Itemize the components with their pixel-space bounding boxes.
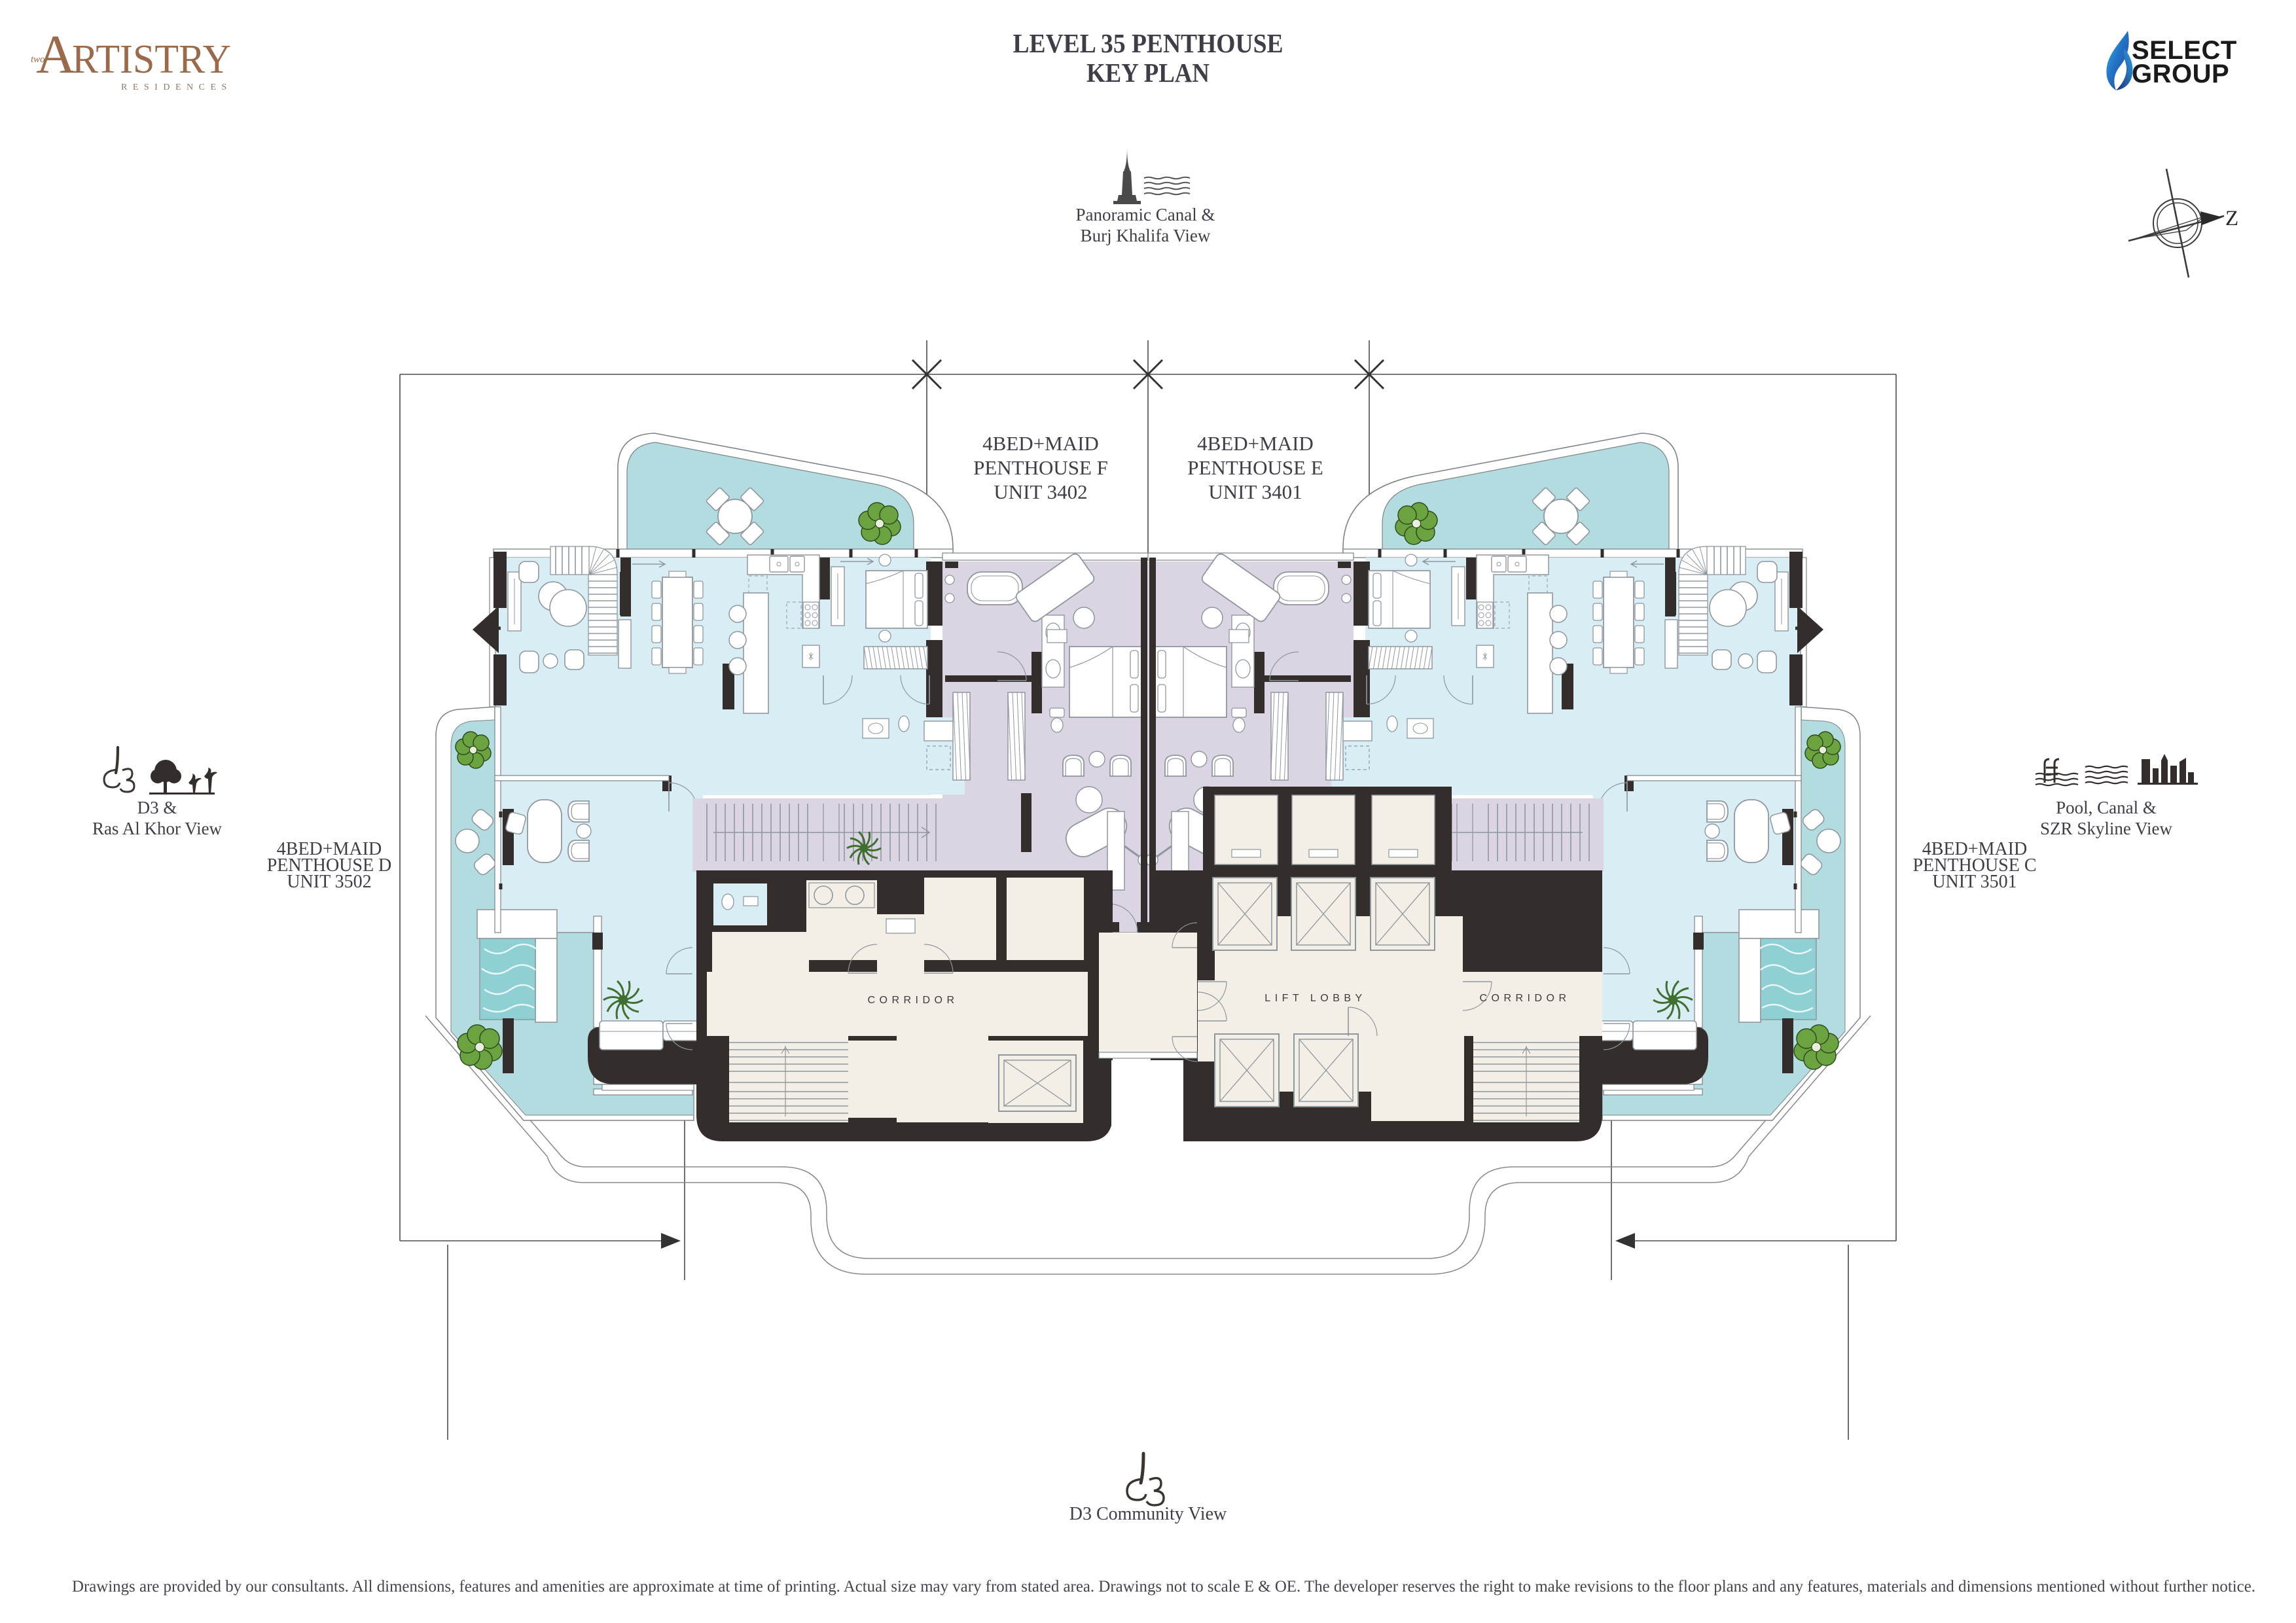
svg-text:Panoramic Canal &: Panoramic Canal & — [1076, 205, 1215, 224]
svg-text:Drawings are provided by our c: Drawings are provided by our consultants… — [72, 1578, 2255, 1596]
svg-text:UNIT 3402: UNIT 3402 — [994, 480, 1087, 503]
svg-text:PENTHOUSE F: PENTHOUSE F — [973, 456, 1108, 479]
svg-text:RTISTRY: RTISTRY — [72, 37, 231, 82]
svg-text:D3 &: D3 & — [137, 798, 177, 817]
svg-text:UNIT 3501: UNIT 3501 — [1932, 872, 2017, 892]
svg-text:RESIDENCES: RESIDENCES — [121, 82, 232, 92]
svg-text:PENTHOUSE E: PENTHOUSE E — [1187, 456, 1323, 479]
svg-text:4BED+MAID: 4BED+MAID — [982, 432, 1099, 455]
svg-text:LEVEL 35 PENTHOUSE: LEVEL 35 PENTHOUSE — [1013, 28, 1283, 58]
svg-text:D3 Community View: D3 Community View — [1069, 1504, 1227, 1524]
svg-text:CORRIDOR: CORRIDOR — [1479, 993, 1570, 1004]
svg-text:Pool, Canal &: Pool, Canal & — [2056, 798, 2157, 817]
svg-text:4BED+MAID: 4BED+MAID — [1197, 432, 1314, 455]
svg-text:UNIT 3502: UNIT 3502 — [287, 872, 371, 892]
svg-text:Burj Khalifa View: Burj Khalifa View — [1081, 226, 1211, 245]
svg-text:CORRIDOR: CORRIDOR — [867, 995, 958, 1006]
svg-text:UNIT 3401: UNIT 3401 — [1208, 480, 1302, 503]
svg-text:Ras Al Khor View: Ras Al Khor View — [92, 819, 223, 838]
svg-text:Z: Z — [2225, 207, 2238, 230]
svg-text:SZR Skyline View: SZR Skyline View — [2040, 819, 2172, 838]
svg-text:LIFT LOBBY: LIFT LOBBY — [1265, 993, 1366, 1004]
svg-text:two: two — [31, 54, 45, 65]
svg-text:GROUP: GROUP — [2132, 60, 2229, 88]
svg-text:KEY PLAN: KEY PLAN — [1086, 58, 1210, 88]
